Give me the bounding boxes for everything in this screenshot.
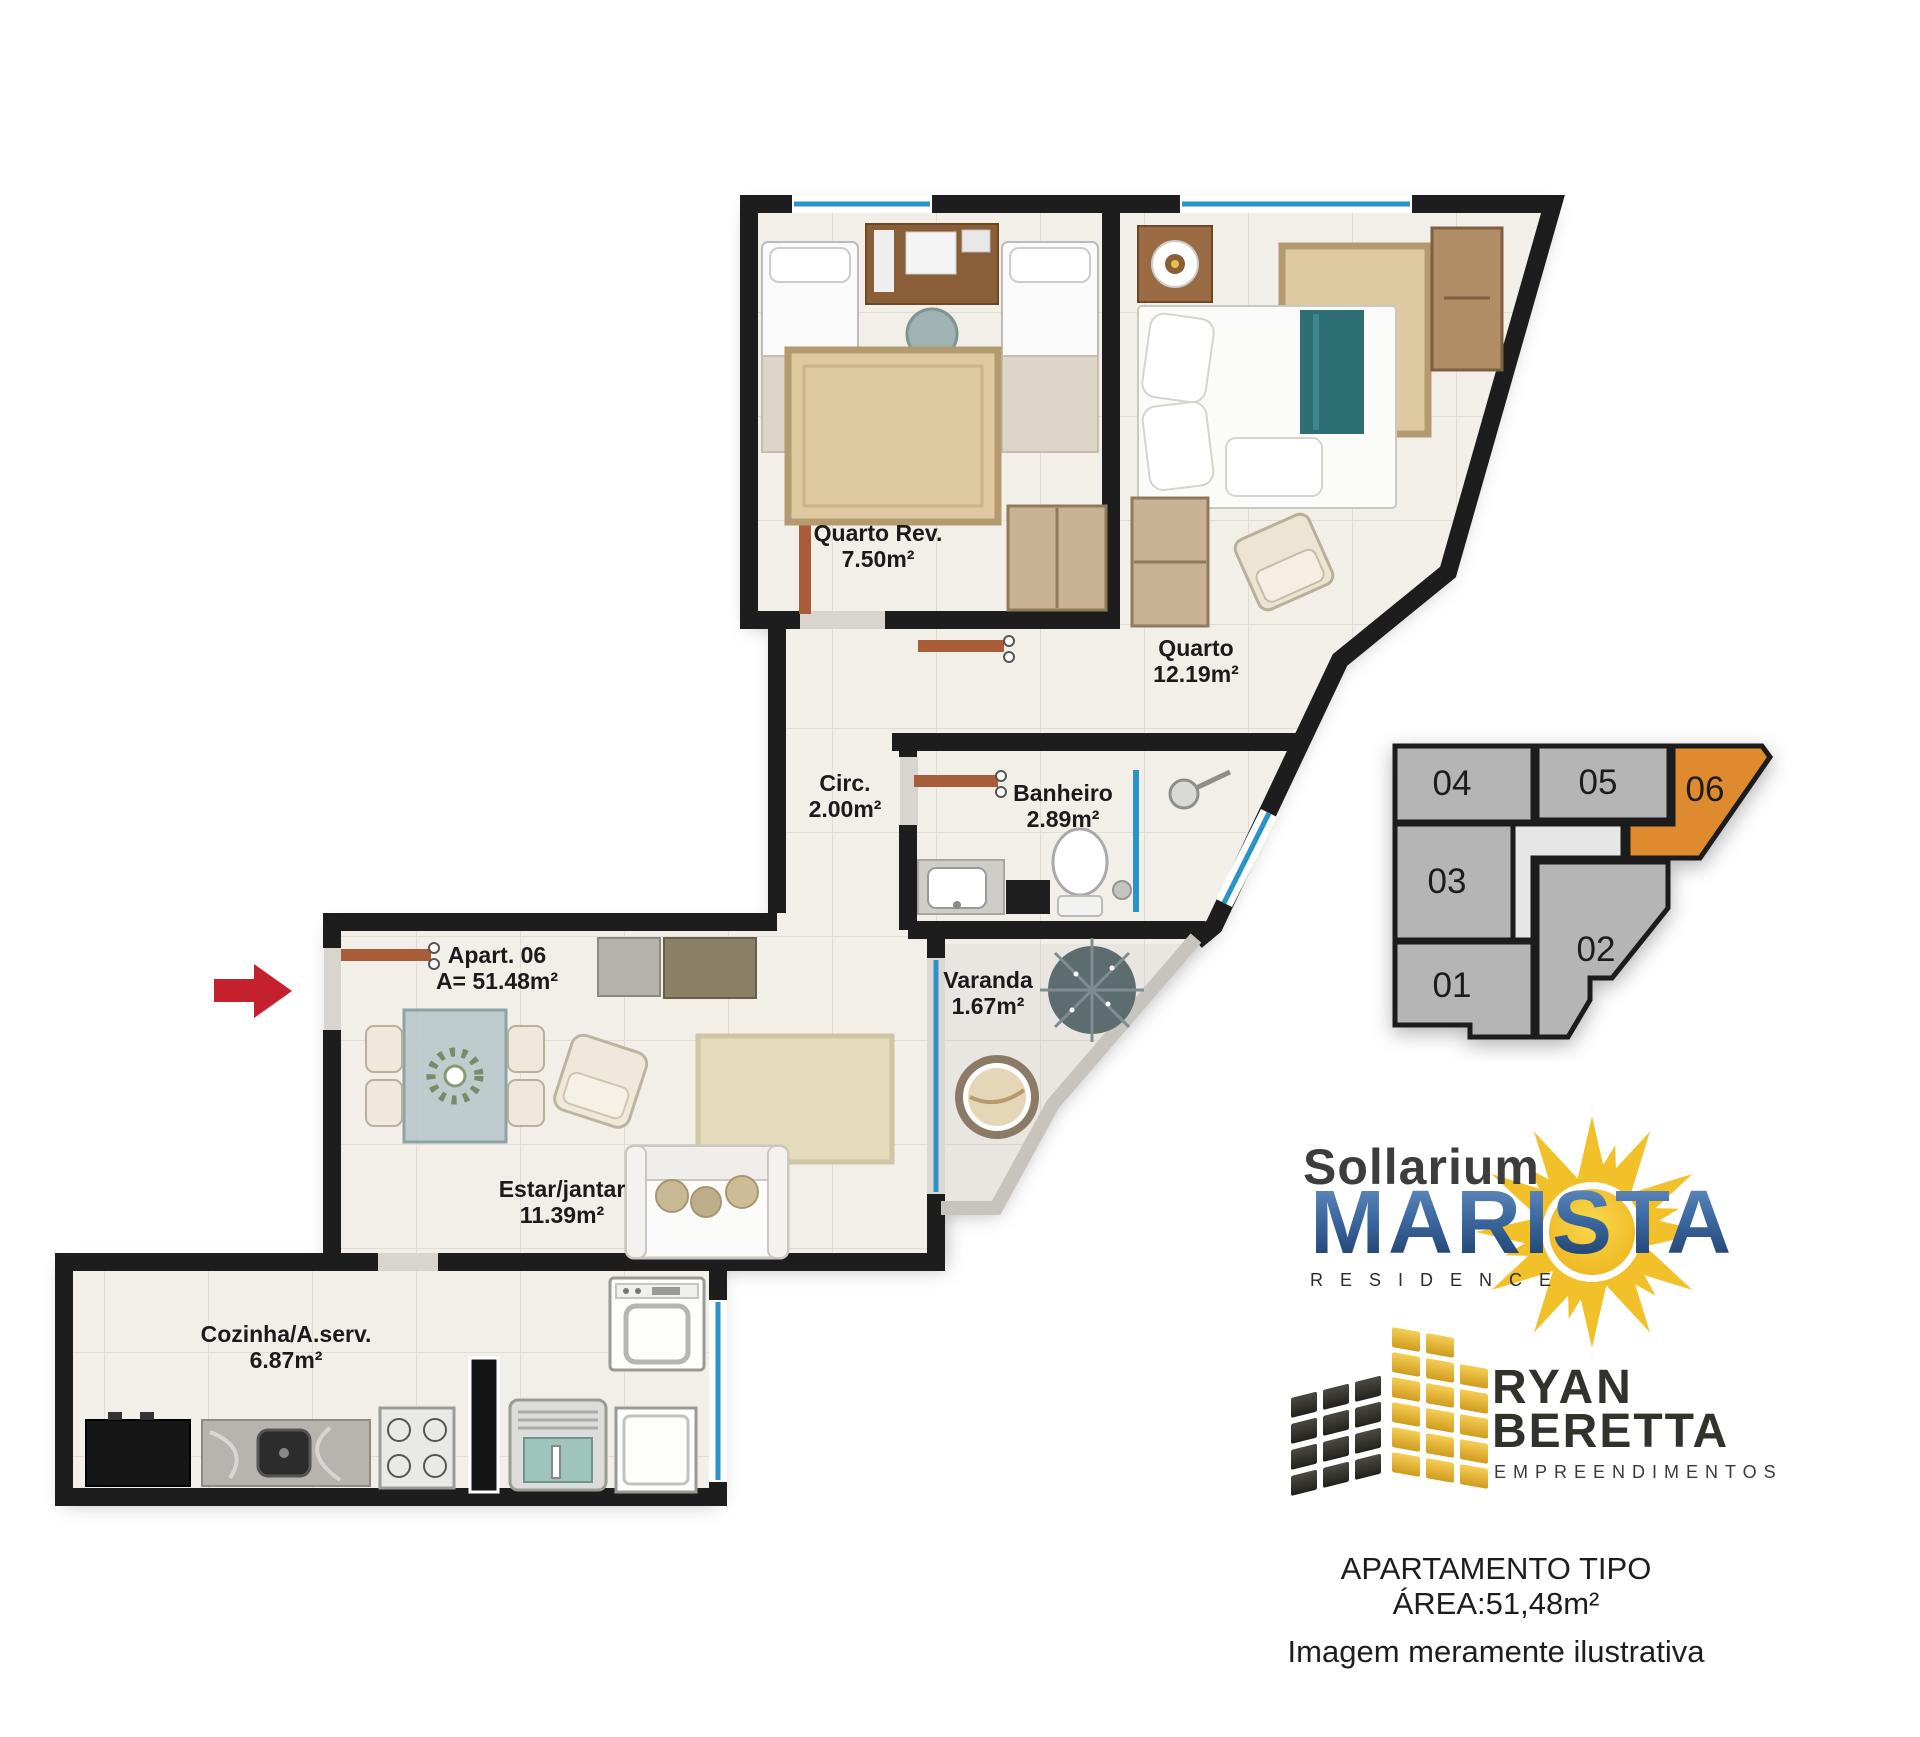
brand-marista: MARISTA	[1310, 1172, 1734, 1275]
room-area: 12.19m²	[1153, 661, 1239, 687]
round-chair	[955, 1055, 1039, 1139]
entry-arrow-icon	[214, 964, 292, 1018]
unit-label-05: 05	[1579, 763, 1618, 803]
room-label-circ: Circ. 2.00m²	[809, 770, 882, 822]
room-area: 11.39m²	[499, 1202, 626, 1228]
poster-canvas: Quarto Rev. 7.50m² Quarto 12.19m² Circ. …	[0, 0, 1920, 1737]
room-label-banheiro: Banheiro 2.89m²	[1013, 780, 1113, 832]
caption-apartment-type: APARTAMENTO TIPO	[1186, 1551, 1806, 1587]
room-name: Circ.	[809, 770, 882, 796]
room-name: Cozinha/A.serv.	[201, 1321, 372, 1347]
plant-icon	[1040, 938, 1144, 1042]
room-label-estar-jantar: Estar/jantar 11.39m²	[499, 1176, 626, 1228]
room-label-quarto-rev: Quarto Rev. 7.50m²	[814, 520, 943, 572]
building-logo-icon	[1291, 1327, 1488, 1496]
room-label-cozinha: Cozinha/A.serv. 6.87m²	[201, 1321, 372, 1373]
room-area: 7.50m²	[814, 546, 943, 572]
room-area: 2.00m²	[809, 796, 882, 822]
room-area: 1.67m²	[943, 993, 1033, 1019]
room-name: Quarto	[1153, 635, 1239, 661]
room-label-quarto: Quarto 12.19m²	[1153, 635, 1239, 687]
apartment-plan	[64, 195, 1553, 1497]
room-area: 2.89m²	[1013, 806, 1113, 832]
caption-disclaimer: Imagem meramente ilustrativa	[1186, 1634, 1806, 1670]
unit-label-06: 06	[1686, 770, 1725, 810]
developer-tagline: EMPREENDIMENTOS	[1494, 1462, 1783, 1483]
caption-area: ÁREA:51,48m²	[1186, 1586, 1806, 1622]
room-name: Estar/jantar	[499, 1176, 626, 1202]
unit-label-01: 01	[1433, 966, 1472, 1006]
room-area: 6.87m²	[201, 1347, 372, 1373]
developer-name-line2: BERETTA	[1492, 1408, 1729, 1456]
unit-label-03: 03	[1428, 862, 1467, 902]
room-area: A= 51.48m²	[436, 968, 558, 994]
unit-label-04: 04	[1433, 764, 1472, 804]
unit-label-02: 02	[1577, 930, 1616, 970]
room-name: Varanda	[943, 967, 1033, 993]
room-name: Quarto Rev.	[814, 520, 943, 546]
room-label-apart-06: Apart. 06 A= 51.48m²	[436, 942, 558, 994]
room-name: Apart. 06	[436, 942, 558, 968]
room-name: Banheiro	[1013, 780, 1113, 806]
brand-residence: RESIDENCE	[1310, 1270, 1568, 1291]
room-label-varanda: Varanda 1.67m²	[943, 967, 1033, 1019]
